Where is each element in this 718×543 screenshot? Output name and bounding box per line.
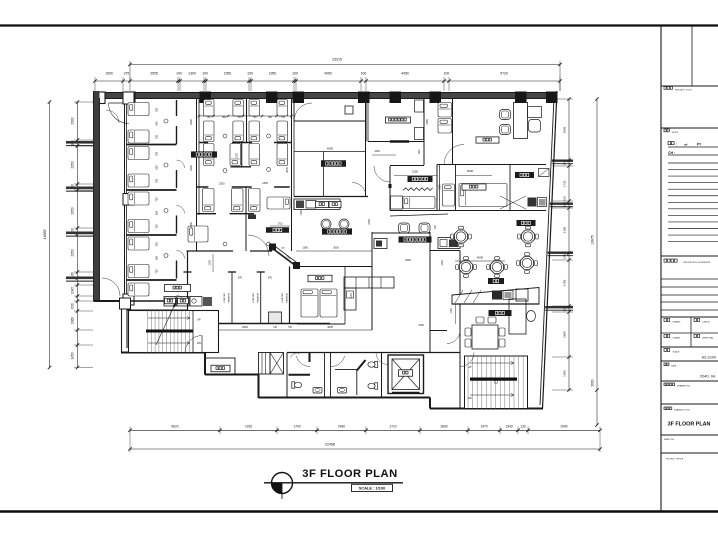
svg-text:5720: 5720 bbox=[500, 72, 508, 76]
svg-text:750: 750 bbox=[156, 107, 159, 112]
svg-text:1100: 1100 bbox=[450, 308, 453, 314]
svg-text:3F FLOOR PLAN: 3F FLOOR PLAN bbox=[302, 468, 397, 480]
svg-text:100: 100 bbox=[563, 160, 567, 165]
svg-text:4000: 4000 bbox=[477, 256, 484, 260]
svg-text:2150: 2150 bbox=[563, 226, 567, 233]
svg-text:3150: 3150 bbox=[412, 170, 419, 174]
svg-text:1700: 1700 bbox=[293, 424, 300, 428]
svg-text:375: 375 bbox=[124, 72, 130, 76]
svg-text:1343: 1343 bbox=[505, 424, 512, 428]
svg-text:13675: 13675 bbox=[591, 235, 595, 245]
svg-text:DRAWN: DRAWN bbox=[673, 321, 681, 324]
svg-text:DESCRIPTION OF REVISION: DESCRIPTION OF REVISION bbox=[683, 262, 711, 264]
svg-text:DATE: DATE bbox=[671, 365, 677, 368]
svg-text:2430: 2430 bbox=[338, 424, 345, 428]
svg-text:2300: 2300 bbox=[71, 117, 75, 124]
svg-text:750: 750 bbox=[156, 224, 159, 229]
svg-text:2600: 2600 bbox=[467, 169, 474, 173]
svg-text:2400: 2400 bbox=[189, 165, 193, 171]
svg-text:2350: 2350 bbox=[71, 207, 75, 214]
svg-text:UP: UP bbox=[468, 366, 472, 369]
svg-text:VIBRATOR: VIBRATOR bbox=[257, 292, 260, 303]
svg-text:CH :: CH : bbox=[668, 151, 675, 155]
svg-text:1200: 1200 bbox=[419, 149, 421, 155]
svg-text:750: 750 bbox=[156, 197, 159, 202]
svg-text:100: 100 bbox=[202, 72, 208, 76]
svg-text:3790: 3790 bbox=[418, 324, 424, 327]
svg-text:630: 630 bbox=[71, 303, 75, 309]
svg-text:2710: 2710 bbox=[389, 424, 396, 428]
svg-text:4050: 4050 bbox=[327, 147, 334, 151]
svg-text:100: 100 bbox=[292, 72, 298, 76]
svg-text:NOTE: NOTE bbox=[672, 132, 679, 134]
svg-text:SCALE : 1/100: SCALE : 1/100 bbox=[359, 486, 385, 491]
svg-text:2400: 2400 bbox=[189, 222, 193, 228]
svg-text:2040. 04.: 2040. 04. bbox=[700, 375, 716, 379]
svg-text:SUBMIT: SUBMIT bbox=[673, 338, 682, 340]
svg-text:DN: DN bbox=[197, 341, 201, 345]
svg-text:870: 870 bbox=[268, 277, 273, 280]
svg-text:2520: 2520 bbox=[242, 325, 248, 329]
svg-text:850: 850 bbox=[156, 121, 159, 126]
svg-text:VIBRATOR: VIBRATOR bbox=[286, 292, 289, 303]
svg-text:2350: 2350 bbox=[219, 183, 225, 186]
svg-text:100: 100 bbox=[247, 72, 253, 76]
svg-text:100: 100 bbox=[176, 72, 182, 76]
svg-text:3F FLOOR PLAN: 3F FLOOR PLAN bbox=[668, 422, 711, 428]
svg-text:4450: 4450 bbox=[401, 72, 409, 76]
svg-text:2830: 2830 bbox=[440, 424, 447, 428]
svg-text:720: 720 bbox=[273, 326, 278, 329]
svg-text:m/: m/ bbox=[684, 143, 688, 147]
svg-text:3140: 3140 bbox=[350, 293, 353, 299]
svg-text:COMFORT: COMFORT bbox=[282, 292, 284, 303]
svg-text:CHECK: CHECK bbox=[703, 322, 711, 324]
svg-text:615: 615 bbox=[563, 196, 567, 201]
svg-text:8020: 8020 bbox=[171, 424, 178, 428]
svg-text:3000: 3000 bbox=[405, 258, 411, 262]
svg-text:2785: 2785 bbox=[563, 279, 567, 286]
svg-text:COMFORT: COMFORT bbox=[224, 292, 226, 303]
svg-text:DRAWING NO: DRAWING NO bbox=[677, 385, 691, 388]
svg-text:750: 750 bbox=[156, 134, 159, 139]
svg-text:APPROVAL: APPROVAL bbox=[703, 337, 715, 340]
svg-text:100: 100 bbox=[563, 254, 567, 259]
svg-text:1200: 1200 bbox=[209, 260, 212, 266]
svg-text:100: 100 bbox=[444, 72, 450, 76]
svg-text:1385: 1385 bbox=[302, 247, 308, 250]
svg-text:750: 750 bbox=[156, 242, 159, 247]
svg-text:COMFORT: COMFORT bbox=[253, 292, 255, 303]
svg-text:870: 870 bbox=[238, 277, 243, 280]
svg-text:2400: 2400 bbox=[368, 219, 371, 225]
svg-text:1045: 1045 bbox=[71, 287, 75, 294]
svg-text:DN: DN bbox=[468, 397, 472, 400]
svg-text:1060: 1060 bbox=[71, 317, 75, 324]
svg-text:3000: 3000 bbox=[333, 247, 339, 250]
svg-text:750: 750 bbox=[156, 178, 159, 183]
svg-text:2385: 2385 bbox=[426, 119, 429, 125]
svg-text:2400: 2400 bbox=[189, 119, 193, 125]
svg-text:3085: 3085 bbox=[563, 126, 567, 133]
svg-text:PROJECT OFFICE: PROJECT OFFICE bbox=[666, 459, 684, 461]
svg-text:23315: 23315 bbox=[332, 58, 342, 62]
svg-text:750: 750 bbox=[156, 151, 159, 156]
svg-text:SCALE: SCALE bbox=[673, 351, 680, 354]
svg-text::: : bbox=[676, 143, 677, 147]
svg-text:2350: 2350 bbox=[262, 182, 268, 185]
svg-text:4050: 4050 bbox=[324, 72, 332, 76]
svg-text:100: 100 bbox=[563, 202, 567, 207]
svg-text:1200: 1200 bbox=[374, 150, 380, 153]
svg-text:4055: 4055 bbox=[286, 167, 289, 173]
svg-text:1730: 1730 bbox=[563, 180, 567, 187]
svg-text:1450: 1450 bbox=[71, 352, 75, 359]
svg-text:1915: 1915 bbox=[245, 424, 252, 428]
svg-text:VIBRATOR: VIBRATOR bbox=[228, 292, 231, 303]
svg-text:4035: 4035 bbox=[327, 325, 333, 329]
svg-text:1250: 1250 bbox=[441, 260, 444, 266]
svg-text:A3.1/100: A3.1/100 bbox=[702, 356, 716, 360]
svg-text:DRAWING TITLE: DRAWING TITLE bbox=[674, 409, 690, 412]
svg-text:850: 850 bbox=[156, 165, 159, 170]
svg-text:100: 100 bbox=[361, 72, 367, 76]
svg-text:130: 130 bbox=[520, 424, 526, 428]
svg-text:100: 100 bbox=[563, 306, 567, 311]
svg-text:1200: 1200 bbox=[235, 153, 238, 159]
svg-text:UP: UP bbox=[197, 318, 201, 322]
svg-text:2860: 2860 bbox=[563, 331, 567, 338]
svg-text:1500: 1500 bbox=[105, 72, 113, 76]
svg-text:SHEET NO.: SHEET NO. bbox=[664, 439, 675, 441]
svg-text:2940: 2940 bbox=[560, 424, 567, 428]
svg-text:2350: 2350 bbox=[224, 72, 232, 76]
svg-text:850: 850 bbox=[156, 255, 159, 260]
svg-text:1450: 1450 bbox=[563, 370, 567, 377]
svg-text:850: 850 bbox=[156, 210, 159, 215]
svg-text:750: 750 bbox=[156, 269, 159, 274]
svg-text:13685: 13685 bbox=[43, 230, 47, 240]
svg-text:1300: 1300 bbox=[188, 72, 196, 76]
svg-text:1700: 1700 bbox=[300, 210, 303, 216]
svg-text:750: 750 bbox=[288, 326, 293, 329]
svg-text:1715: 1715 bbox=[277, 223, 283, 226]
svg-text:1470: 1470 bbox=[480, 424, 487, 428]
svg-text:2350: 2350 bbox=[71, 249, 75, 256]
svg-text:2595: 2595 bbox=[150, 72, 158, 76]
svg-text:2355: 2355 bbox=[440, 184, 442, 190]
svg-text:2350: 2350 bbox=[71, 161, 75, 168]
svg-text:22458: 22458 bbox=[325, 443, 335, 447]
svg-text:2350: 2350 bbox=[269, 72, 277, 76]
svg-text:PROJECT TITLE: PROJECT TITLE bbox=[675, 90, 692, 92]
svg-text:3000: 3000 bbox=[591, 379, 595, 386]
